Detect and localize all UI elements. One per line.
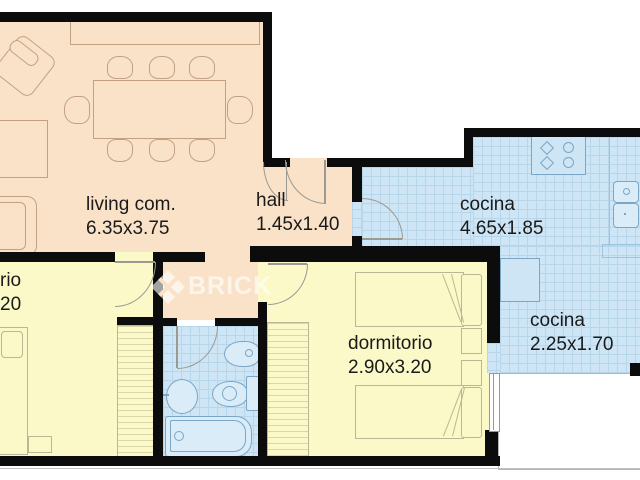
bathroom-door-leaf — [176, 326, 178, 368]
sideboard — [70, 18, 260, 45]
dining-chair — [64, 96, 90, 124]
dining-chair — [107, 139, 133, 162]
bed-pillow — [461, 387, 482, 438]
floor-plan: living com. 6.35x3.75 hall 1.45x1.40 coc… — [0, 0, 640, 480]
dining-chair — [107, 56, 133, 79]
wall — [250, 246, 500, 262]
bed — [355, 385, 464, 439]
room-label-bedroom-left: rio 20 — [0, 269, 21, 317]
room-label-hall: hall 1.45x1.40 — [256, 189, 339, 237]
terrace — [498, 373, 640, 470]
dining-chair — [149, 56, 175, 79]
toilet-seat-icon — [222, 386, 237, 401]
dining-chair — [227, 96, 253, 124]
room-dimensions: 6.35x3.75 — [86, 217, 176, 241]
wall — [0, 12, 272, 22]
wall — [163, 318, 177, 326]
dining-chair — [189, 139, 215, 162]
room-label-bedroom: dormitorio 2.90x3.20 — [348, 332, 432, 380]
kitchen-doorway-floor — [352, 200, 362, 240]
stove — [531, 136, 586, 175]
wall — [487, 252, 500, 343]
fridge — [500, 258, 540, 302]
washbasin — [166, 379, 198, 414]
nightstand — [28, 436, 52, 453]
bidet-tap-icon — [245, 349, 253, 357]
kitchen-door-leaf — [362, 238, 402, 240]
bed-pillow — [1, 331, 23, 358]
room-label-living: living com. 6.35x3.75 — [86, 193, 176, 241]
nightstand — [461, 328, 482, 354]
nightstand — [461, 360, 482, 386]
kitchen-sink-2 — [613, 203, 639, 228]
wall — [117, 317, 155, 325]
dining-table — [93, 80, 226, 139]
bathtub-drain-icon — [174, 431, 184, 441]
dining-chair — [189, 56, 215, 79]
wardrobe — [117, 325, 157, 459]
room-name: dormitorio — [348, 332, 432, 356]
watermark: BRICK — [156, 272, 272, 301]
room-dimensions: 20 — [0, 293, 21, 317]
room-name: hall — [256, 189, 339, 213]
bedroom-door-leaf — [268, 263, 307, 265]
wall — [0, 456, 500, 466]
room-name: rio — [0, 269, 21, 293]
room-name: living com. — [86, 193, 176, 217]
wall — [464, 128, 640, 137]
stove-burner-icon — [563, 157, 574, 168]
brick-diamond-logo-icon — [151, 270, 185, 304]
wall — [215, 318, 263, 326]
room-dimensions: 2.90x3.20 — [348, 356, 432, 380]
sofa-seat — [0, 202, 26, 250]
dining-chair — [149, 139, 175, 162]
room-label-kitchen: cocina 4.65x1.85 — [460, 193, 543, 241]
wall — [0, 252, 115, 262]
room-dimensions: 4.65x1.85 — [460, 217, 543, 241]
sink-dot-icon — [624, 213, 626, 215]
watermark-brand-text: BRICK — [188, 272, 272, 301]
wall — [352, 167, 362, 202]
wall — [630, 363, 640, 376]
wall — [258, 302, 267, 458]
stove-burner-icon — [563, 142, 574, 153]
bed — [355, 272, 464, 327]
wall — [263, 12, 272, 163]
plot-boundary-line — [0, 468, 640, 469]
window-pane-line — [493, 373, 494, 430]
kitchen2-passage-floor — [487, 343, 500, 373]
bidet — [224, 341, 260, 367]
washbasin-tap-icon — [163, 394, 169, 396]
room-dimensions: 2.25x1.70 — [530, 333, 613, 357]
bedroom-left-door-leaf — [115, 261, 155, 263]
wall — [327, 158, 473, 167]
room-name: cocina — [530, 309, 613, 333]
wardrobe — [267, 322, 309, 459]
side-table — [0, 120, 48, 178]
kitchen-shelf — [602, 244, 640, 258]
window — [489, 373, 500, 432]
kitchen-counter-edge — [609, 137, 610, 246]
room-label-kitchen-2: cocina 2.25x1.70 — [530, 309, 613, 357]
wall — [485, 430, 498, 458]
sink-drain-icon — [623, 188, 630, 195]
bed-pillow — [461, 274, 482, 326]
room-name: cocina — [460, 193, 543, 217]
room-dimensions: 1.45x1.40 — [256, 213, 339, 237]
